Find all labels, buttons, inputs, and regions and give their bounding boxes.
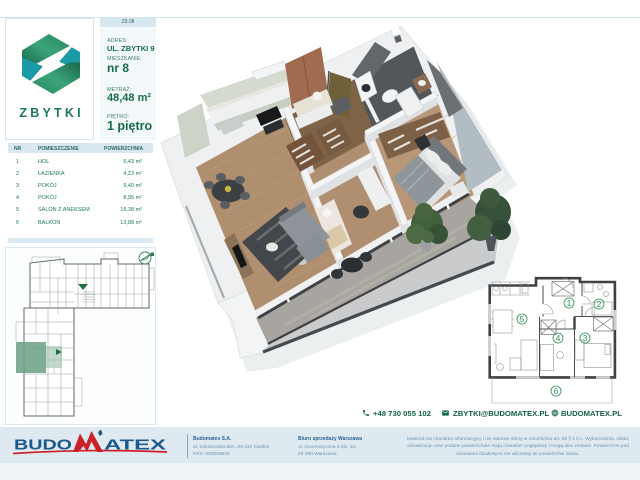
svg-text:6: 6 xyxy=(554,386,559,396)
svg-text:2: 2 xyxy=(597,299,602,309)
svg-text:5: 5 xyxy=(520,314,525,324)
svg-text:4: 4 xyxy=(556,333,561,343)
svg-text:1: 1 xyxy=(567,298,572,308)
svg-text:3: 3 xyxy=(583,333,588,343)
